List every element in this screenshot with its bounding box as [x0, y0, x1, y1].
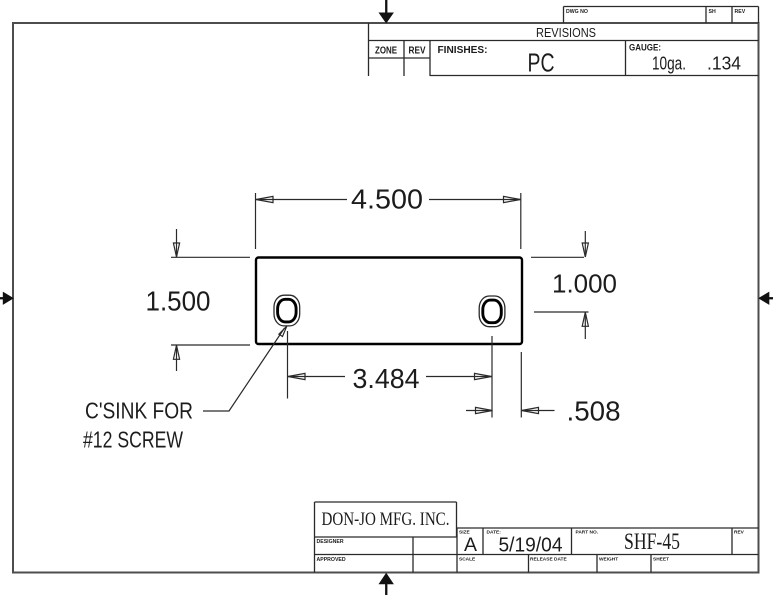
- svg-text:SH: SH: [709, 9, 716, 15]
- svg-text:REV: REV: [734, 530, 745, 536]
- svg-text:APPROVED: APPROVED: [317, 557, 346, 563]
- svg-text:PC: PC: [528, 48, 555, 78]
- svg-text:FINISHES:: FINISHES:: [438, 44, 488, 56]
- svg-text:5/19/04: 5/19/04: [499, 534, 563, 557]
- svg-text:SCALE: SCALE: [459, 557, 476, 563]
- svg-text:ZONE: ZONE: [375, 46, 397, 57]
- svg-text:#12 SCREW: #12 SCREW: [83, 427, 184, 453]
- svg-text:.134: .134: [707, 53, 741, 74]
- svg-text:3.484: 3.484: [353, 363, 420, 394]
- svg-text:PART NO.: PART NO.: [576, 530, 599, 536]
- svg-text:4.500: 4.500: [351, 184, 423, 215]
- svg-text:.508: .508: [567, 396, 621, 427]
- svg-text:SHF-45: SHF-45: [624, 529, 680, 554]
- svg-text:DWG NO: DWG NO: [566, 9, 588, 15]
- svg-text:WEIGHT: WEIGHT: [599, 557, 618, 563]
- svg-text:REVISIONS: REVISIONS: [536, 26, 596, 40]
- svg-text:REV: REV: [735, 9, 746, 15]
- svg-text:DON-JO MFG. INC.: DON-JO MFG. INC.: [322, 509, 450, 530]
- svg-text:10ga.: 10ga.: [652, 53, 686, 74]
- svg-text:DESIGNER: DESIGNER: [317, 539, 344, 545]
- svg-text:A: A: [464, 534, 477, 556]
- svg-text:SHEET: SHEET: [653, 557, 669, 563]
- svg-text:REV: REV: [409, 46, 426, 57]
- svg-text:1.500: 1.500: [146, 286, 211, 317]
- svg-text:RELEASE DATE: RELEASE DATE: [530, 557, 567, 563]
- svg-text:C'SINK FOR: C'SINK FOR: [85, 398, 193, 424]
- svg-text:1.000: 1.000: [552, 269, 617, 299]
